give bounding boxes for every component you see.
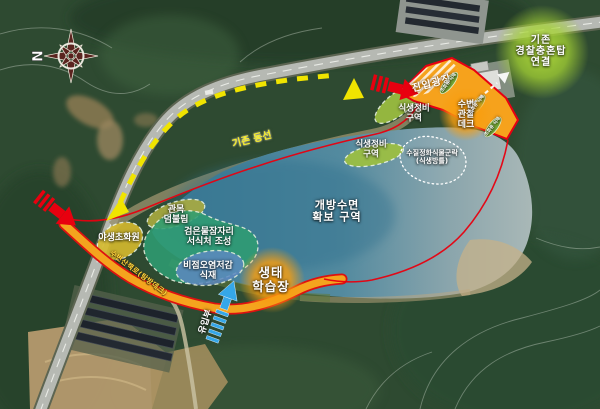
damselfly-habitat-label: 검은물잠자리 서식처 조성 [184,227,234,247]
vegetation-lower-label: 식생정비 구역 [355,140,386,159]
map-canvas: N [0,0,600,409]
open-water-label: 개방수면 확보 구역 [312,200,361,225]
eco-learning-label: 생태 학습장 [252,266,290,294]
memorial-link-label: 기존 경찰충혼탑 연결 [516,35,567,69]
wildflower-garden-label: 야생초화원 [98,233,139,243]
compass-north-letter: N [31,50,47,62]
water-purification-label: 수질정화식물군락 (식생방틀) [406,150,458,166]
nonpoint-planting-label: 비점오염저감 식재 [183,261,233,281]
shrub-thicket-label: 관목 덤불림 [164,205,189,225]
vegetation-upper-label: 식생정비 구역 [398,104,429,123]
site-plan-map: N 기존 동선 기존 경찰충혼탑 연결 진입광장 수변 관찰 데크 식생정비 구… [0,0,600,409]
